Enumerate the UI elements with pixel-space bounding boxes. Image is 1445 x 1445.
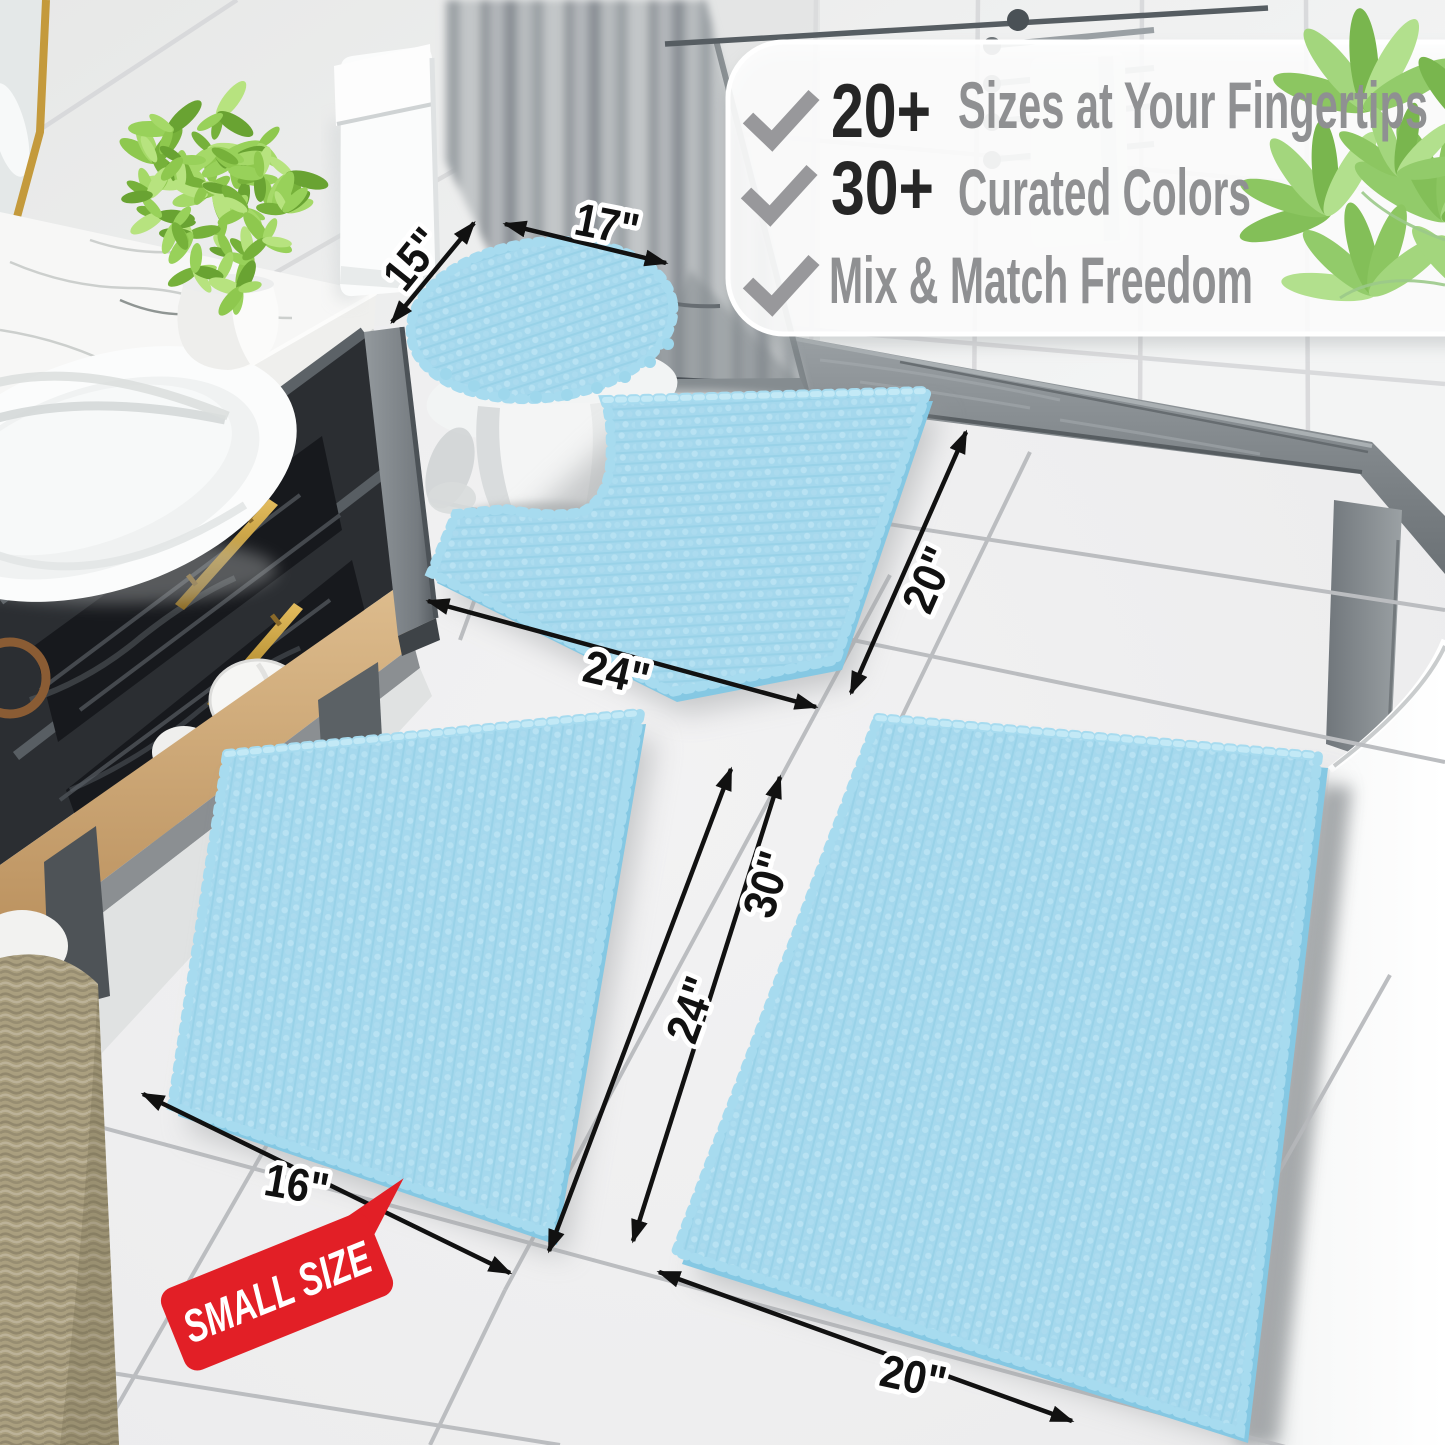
svg-text:Mix & Match Freedom: Mix & Match Freedom bbox=[829, 243, 1253, 317]
svg-text:Curated Colors: Curated Colors bbox=[958, 155, 1251, 229]
svg-text:20+: 20+ bbox=[831, 69, 931, 154]
svg-text:Sizes at Your Fingertips: Sizes at Your Fingertips bbox=[958, 68, 1428, 142]
svg-text:30+: 30+ bbox=[831, 146, 934, 231]
svg-text:16": 16" bbox=[261, 1153, 333, 1215]
